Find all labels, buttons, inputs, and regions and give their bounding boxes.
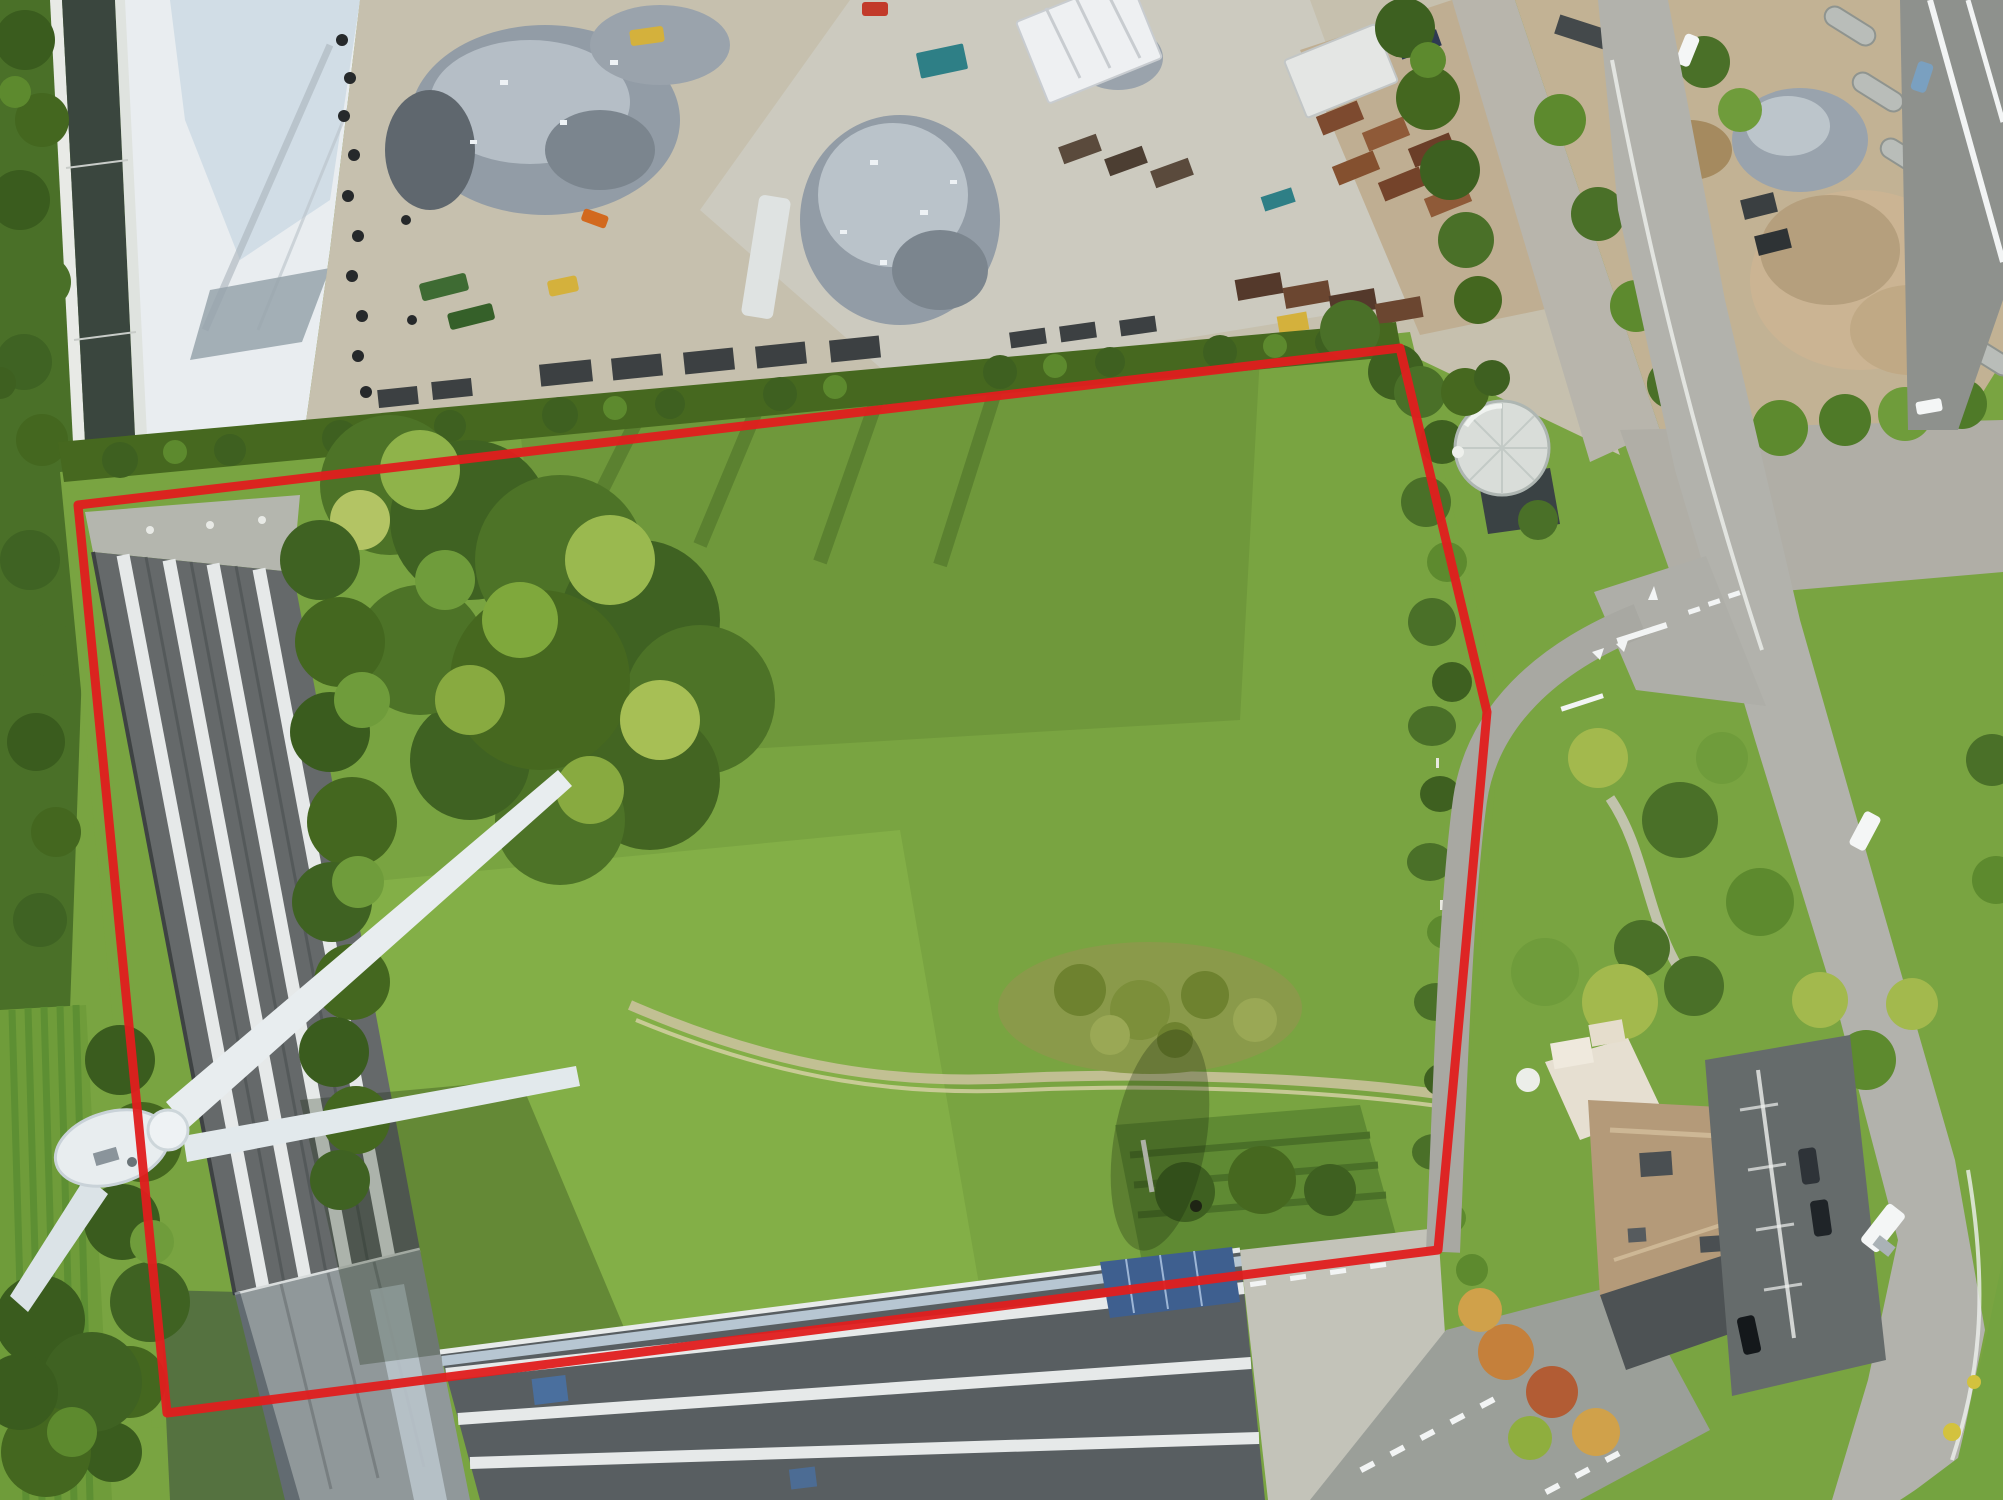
- aerial-photo: [0, 0, 2003, 1500]
- screenshot-stage: [0, 0, 2003, 1500]
